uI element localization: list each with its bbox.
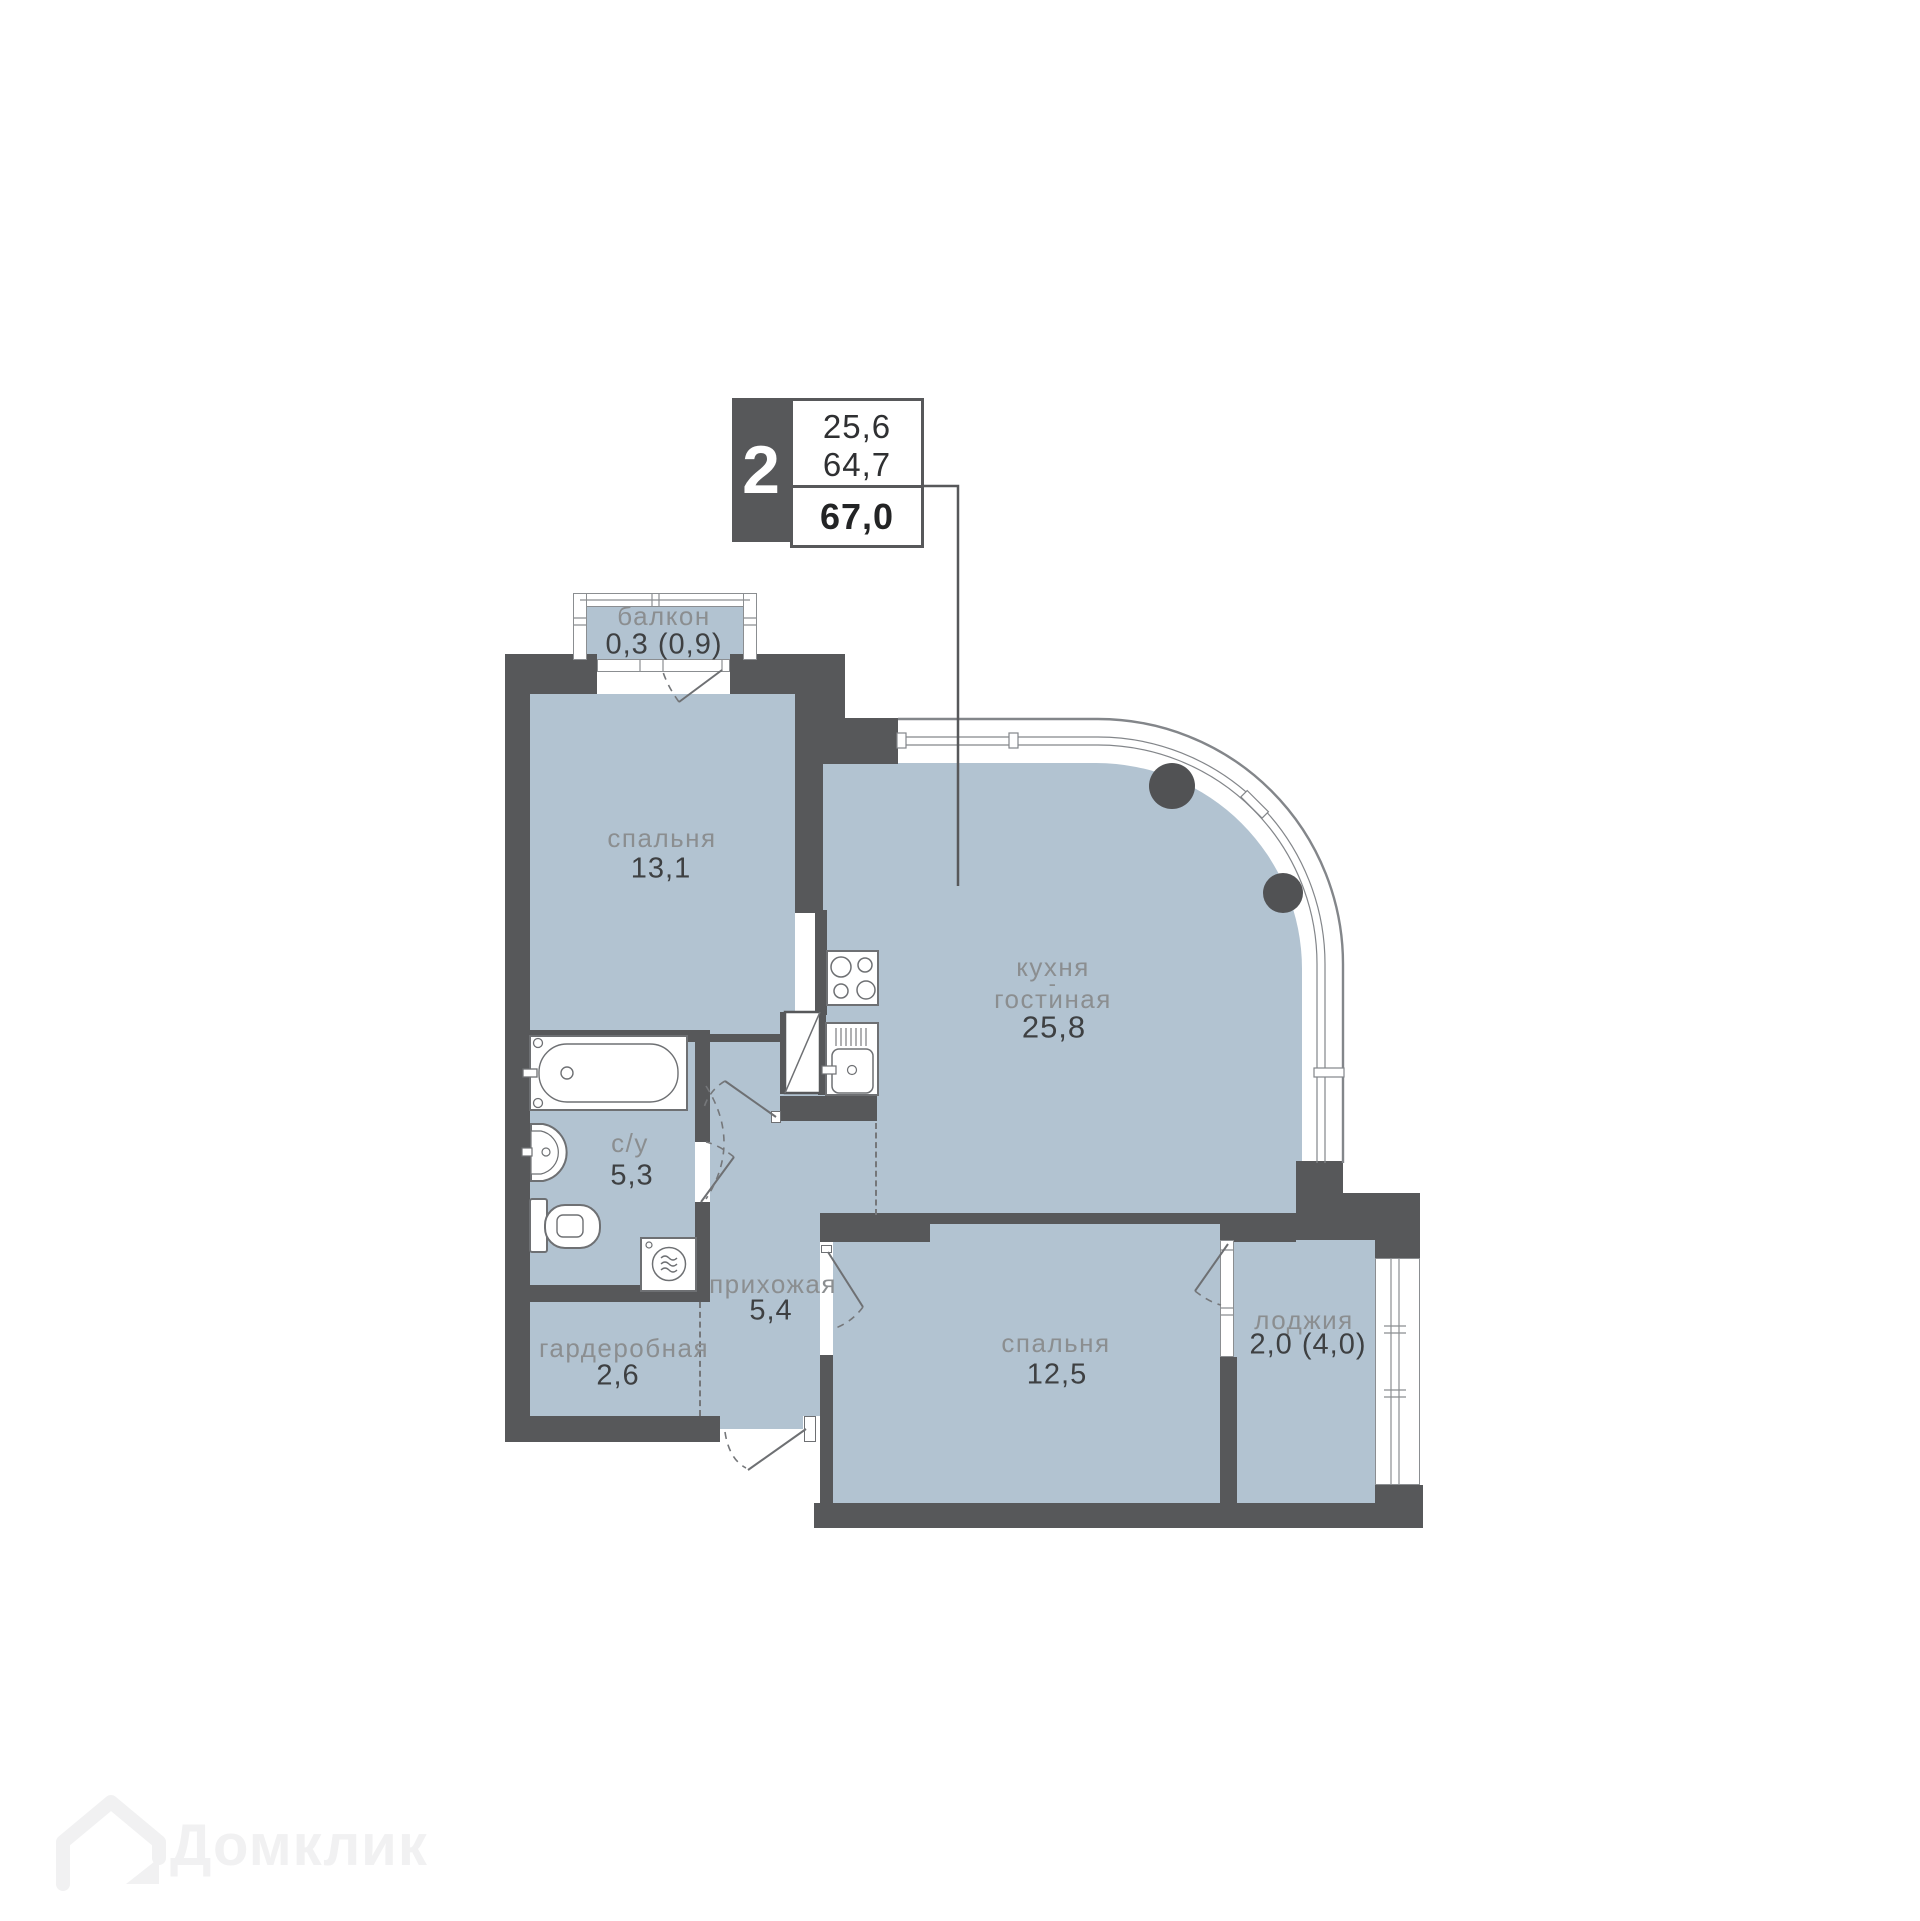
badge-room-count: 2 — [732, 398, 790, 542]
loggia-window — [1375, 1258, 1420, 1485]
balcony-label: балкон — [617, 603, 710, 629]
kitchen-label-line2: гостиная — [994, 986, 1112, 1012]
watermark-house-icon — [63, 1802, 159, 1884]
zone-boundary-hallway-kitchen — [875, 1123, 877, 1215]
wall-segment — [814, 1503, 1423, 1528]
room-hallway-doorsill — [718, 1416, 803, 1429]
wall-segment — [780, 1012, 786, 1094]
wall-segment — [695, 1042, 710, 1142]
bedroom1-label: спальня — [607, 825, 716, 851]
loggia-area: 2,0 (4,0) — [1250, 1331, 1367, 1360]
watermark-brand: Домклик — [170, 1812, 428, 1879]
wall-segment — [1220, 1213, 1296, 1242]
floorplan-canvas: балкон 0,3 (0,9) спальня 13,1 кухня - го… — [0, 0, 1920, 1921]
wall-segment — [780, 1096, 877, 1121]
bathroom-area: 5,3 — [610, 1162, 653, 1191]
wall-segment — [1375, 1240, 1420, 1258]
wall-segment — [505, 654, 530, 1442]
balcony-area: 0,3 (0,9) — [606, 631, 723, 660]
badge-areas: 25,6 64,7 — [790, 398, 924, 494]
wall-segment — [730, 654, 845, 694]
room-loggia — [1234, 1240, 1375, 1503]
bedroom2-loggia-window-strip — [1220, 1240, 1234, 1357]
hallway-area: 5,4 — [749, 1297, 792, 1326]
wall-segment — [818, 1010, 826, 1095]
entry-door-jamb — [804, 1416, 816, 1442]
wall-segment — [505, 1030, 710, 1042]
wall-segment — [505, 1285, 710, 1302]
bedroom2-door-jamb — [821, 1245, 832, 1253]
room-hallway-upper — [710, 1042, 877, 1215]
wall-segment — [1343, 1193, 1420, 1240]
wall-segment — [505, 1416, 720, 1442]
balcony-door-window-strip — [597, 659, 730, 672]
hallway-label: прихожая — [709, 1271, 837, 1297]
bedroom2-label: спальня — [1001, 1330, 1110, 1356]
wall-segment — [795, 694, 845, 720]
balcony-window-frame-left — [573, 593, 587, 660]
badge-area-main: 64,7 — [823, 446, 891, 484]
kitchen-door-jamb — [771, 1111, 781, 1123]
kitchen-area: 25,8 — [1022, 1012, 1086, 1043]
badge-area-living: 25,6 — [823, 408, 891, 446]
wall-segment — [1296, 1161, 1343, 1240]
wall-segment — [1375, 1485, 1423, 1503]
badge-area-total: 67,0 — [790, 485, 924, 548]
wall-segment — [795, 718, 823, 913]
balcony-window-frame-right — [743, 593, 757, 660]
wall-segment — [1220, 1357, 1237, 1503]
wall-segment — [820, 1213, 930, 1242]
wall-segment — [710, 1034, 782, 1042]
wardrobe-label: гардеробная — [539, 1335, 709, 1361]
bedroom1-area: 13,1 — [631, 855, 691, 884]
bedroom2-area: 12,5 — [1027, 1361, 1087, 1390]
wall-segment — [505, 654, 597, 694]
wall-segment — [699, 1131, 707, 1142]
wardrobe-area: 2,6 — [596, 1362, 639, 1391]
wall-segment — [815, 910, 827, 1015]
bathroom-label: с/у — [611, 1130, 649, 1156]
